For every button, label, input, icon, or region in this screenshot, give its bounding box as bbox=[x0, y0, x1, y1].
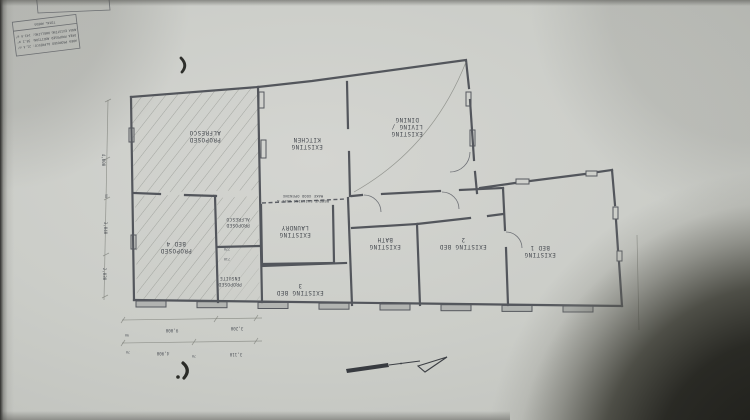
cut-off-box bbox=[36, 0, 110, 13]
svg-text:DINING: DINING bbox=[395, 116, 419, 122]
area-schedule-box: TOTAL AREAS AREA EXISTING DWELLING: 143.… bbox=[12, 14, 80, 56]
proposed-ensuite-area bbox=[217, 247, 260, 301]
svg-text:PROPOSED: PROPOSED bbox=[160, 247, 192, 253]
svg-text:PROPOSED: PROPOSED bbox=[218, 281, 242, 287]
room-label-alfresco1: PROPOSED ALFRESCO bbox=[189, 129, 221, 142]
svg-text:90: 90 bbox=[104, 194, 108, 198]
svg-text:EXISTING BED: EXISTING BED bbox=[439, 243, 486, 249]
svg-text:ALFRESCO: ALFRESCO bbox=[189, 129, 221, 135]
door-swings bbox=[364, 152, 522, 248]
svg-text:PROPOSED: PROPOSED bbox=[226, 222, 250, 228]
room-label-bed3: EXISTING BED 3 bbox=[276, 282, 323, 295]
svg-text:3: 3 bbox=[298, 282, 302, 288]
svg-text:KITCHEN: KITCHEN bbox=[293, 136, 321, 142]
svg-text:BATH: BATH bbox=[377, 236, 393, 242]
svg-text:9,000: 9,000 bbox=[165, 328, 178, 333]
svg-text:70: 70 bbox=[192, 354, 196, 358]
svg-text:EXISTING: EXISTING bbox=[291, 143, 323, 149]
svg-text:770: 770 bbox=[224, 247, 230, 251]
paper-crease bbox=[637, 235, 639, 330]
svg-text:EXISTING: EXISTING bbox=[369, 243, 401, 249]
svg-text:EXISTING: EXISTING bbox=[524, 251, 556, 257]
room-label-bath: EXISTING BATH bbox=[369, 236, 401, 249]
room-label-living-dining: EXISTING LIVING / DINING bbox=[391, 116, 423, 136]
svg-text:MAKE GOOD OPENING: MAKE GOOD OPENING bbox=[283, 194, 323, 198]
svg-text:EXISTING BED: EXISTING BED bbox=[276, 289, 323, 295]
svg-text:ALFRESCO: ALFRESCO bbox=[226, 216, 250, 222]
svg-text:4,900: 4,900 bbox=[156, 351, 169, 356]
svg-text:PROPOSED: PROPOSED bbox=[189, 136, 221, 142]
svg-text:3,110: 3,110 bbox=[229, 352, 242, 357]
svg-text:EXISTING: EXISTING bbox=[279, 231, 311, 237]
svg-text:EXISTING: EXISTING bbox=[391, 130, 423, 136]
photographed-floor-plan: PROPOSED ALFRESCO EXISTING KITCHEN EXIST… bbox=[0, 0, 750, 420]
svg-text:3,200: 3,200 bbox=[230, 326, 243, 331]
svg-text:ENSUITE: ENSUITE bbox=[220, 275, 241, 281]
floor-plan-drawing: PROPOSED ALFRESCO EXISTING KITCHEN EXIST… bbox=[0, 0, 750, 420]
crescent-pen-mark-top bbox=[181, 58, 185, 72]
svg-text:LAUNDRY: LAUNDRY bbox=[281, 224, 309, 230]
north-arrow-icon bbox=[346, 357, 447, 373]
svg-text:3,040: 3,040 bbox=[103, 222, 108, 235]
svg-text:90: 90 bbox=[125, 333, 129, 337]
svg-text:BED 4: BED 4 bbox=[166, 240, 186, 246]
room-label-bed2: EXISTING BED 2 bbox=[439, 236, 486, 249]
room-label-kitchen: EXISTING KITCHEN bbox=[291, 136, 323, 149]
svg-text:TOTAL AREAS: TOTAL AREAS bbox=[34, 20, 56, 27]
svg-text:70: 70 bbox=[126, 350, 130, 354]
svg-text:2,030: 2,030 bbox=[102, 268, 107, 281]
svg-text:LIVING /: LIVING / bbox=[391, 123, 423, 129]
room-label-laundry: EXISTING LAUNDRY bbox=[279, 224, 311, 237]
room-label-bed1: EXISTING BED 1 bbox=[524, 244, 556, 257]
svg-text:2: 2 bbox=[461, 236, 465, 242]
svg-text:710: 710 bbox=[224, 257, 230, 261]
svg-text:4,000: 4,000 bbox=[101, 154, 106, 167]
proposed-bed4-area bbox=[135, 194, 216, 300]
svg-text:REMOVE EXISTING WALL &: REMOVE EXISTING WALL & bbox=[276, 199, 329, 203]
note-remove-wall: REMOVE EXISTING WALL & MAKE GOOD OPENING bbox=[276, 194, 329, 203]
crescent-pen-mark-bottom bbox=[176, 363, 187, 379]
svg-text:BED 1: BED 1 bbox=[530, 244, 550, 250]
